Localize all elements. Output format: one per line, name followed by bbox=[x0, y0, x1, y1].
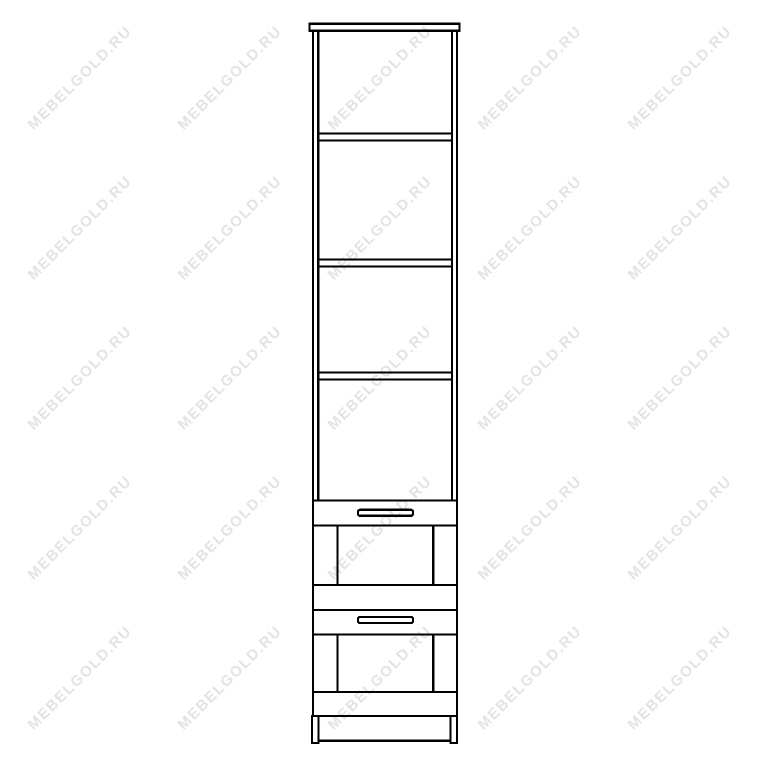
shelf-2 bbox=[318, 260, 452, 267]
furniture-schematic-drawing bbox=[0, 0, 770, 770]
plinth-left-foot bbox=[312, 716, 319, 743]
plinth-right-foot bbox=[451, 716, 458, 743]
shelf-1 bbox=[318, 134, 452, 141]
drawer-2-handle bbox=[358, 617, 413, 623]
shelf-3 bbox=[318, 373, 452, 380]
drawer-1-handle bbox=[358, 510, 413, 516]
top-board bbox=[310, 24, 460, 31]
